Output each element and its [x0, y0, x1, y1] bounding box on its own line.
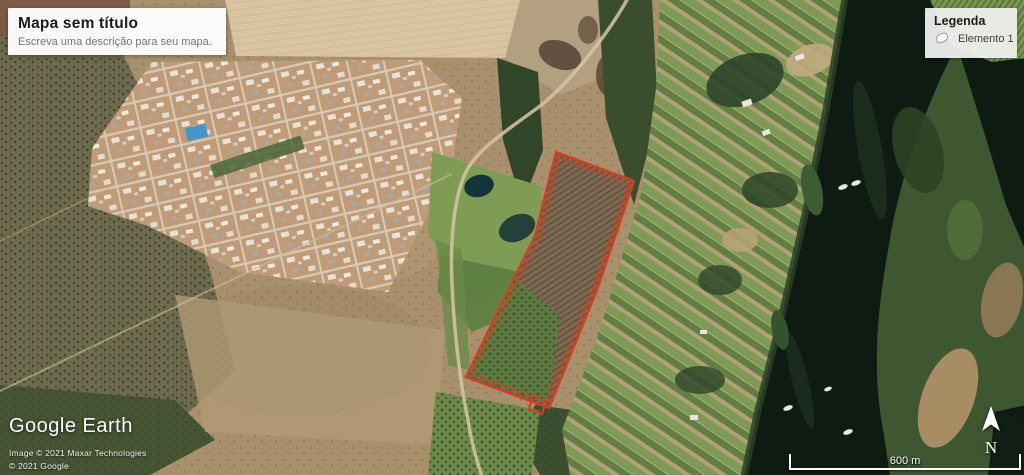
map-title-panel[interactable]: Mapa sem título Escreva uma descrição pa… [8, 8, 226, 55]
legend-title: Legenda [934, 14, 1017, 28]
legend-item-elemento-1[interactable]: Elemento 1 [934, 32, 1017, 45]
copyright-attribution: © 2021 Google [9, 461, 69, 471]
imagery-attribution: Image © 2021 Maxar Technologies [9, 448, 147, 458]
google-earth-logo: Google Earth [9, 415, 133, 438]
scale-bar-label: 600 m [791, 455, 1019, 467]
google-earth-viewport: Mapa sem título Escreva uma descrição pa… [0, 0, 1024, 475]
map-title: Mapa sem título [18, 15, 216, 33]
compass[interactable]: N [977, 405, 1005, 456]
legend-item-label: Elemento 1 [958, 33, 1014, 45]
north-arrow-icon[interactable] [977, 405, 1005, 433]
polygon-swatch-icon [934, 32, 950, 45]
legend-panel: Legenda Elemento 1 [925, 8, 1017, 58]
map-description-placeholder: Escreva uma descrição para seu mapa. [18, 36, 216, 48]
scale-bar: 600 m [789, 454, 1021, 470]
satellite-map[interactable] [0, 0, 1024, 475]
